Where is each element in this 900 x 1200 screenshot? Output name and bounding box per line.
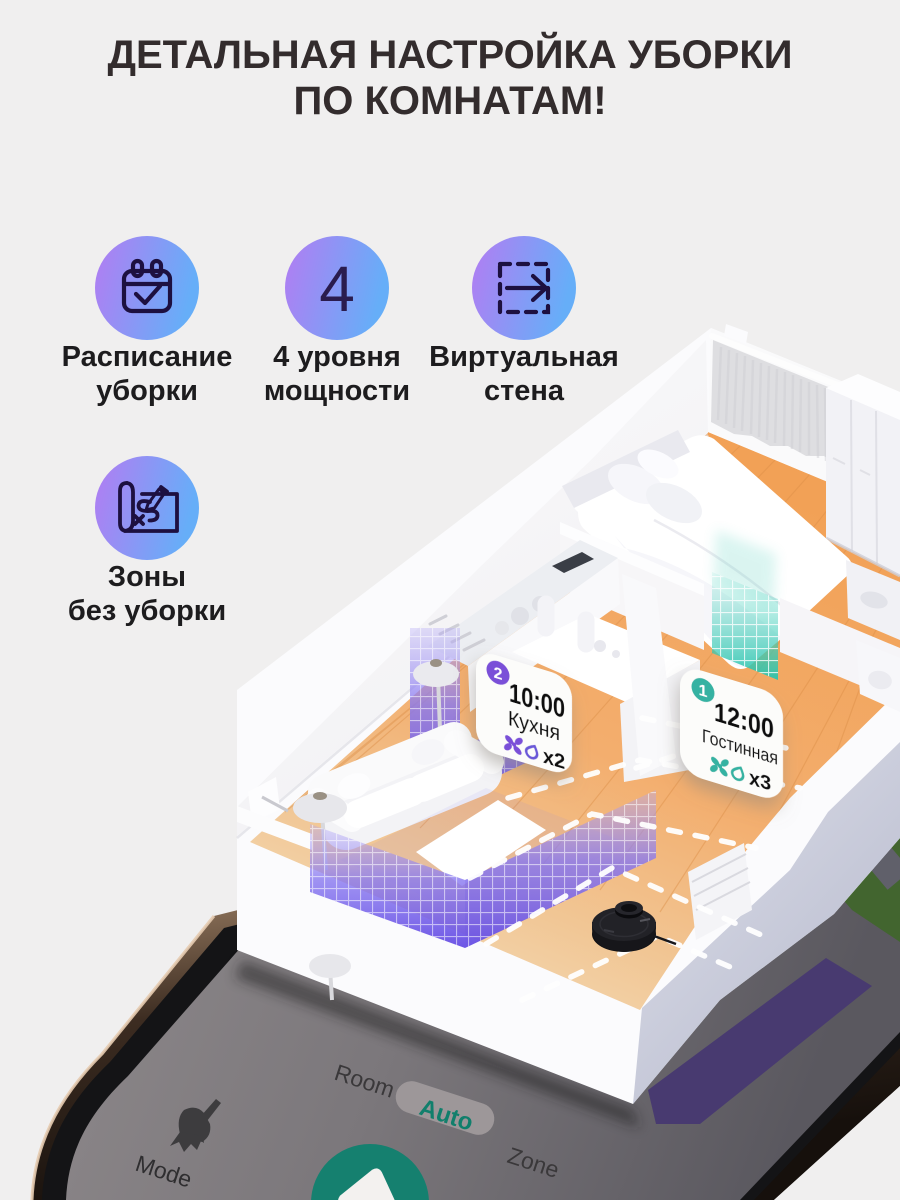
svg-text:ПО КОМНАТАМ!: ПО КОМНАТАМ! [293,79,606,123]
svg-text:без уборки: без уборки [68,595,226,627]
svg-text:мощности: мощности [264,375,410,407]
svg-text:1: 1 [699,681,708,701]
svg-text:4 уровня: 4 уровня [273,341,401,373]
svg-text:4: 4 [319,253,355,325]
svg-text:Расписание: Расписание [62,341,233,373]
svg-text:стена: стена [484,375,565,407]
svg-text:уборки: уборки [96,375,198,407]
svg-text:2: 2 [494,664,503,684]
svg-text:Виртуальная: Виртуальная [429,341,619,373]
svg-text:Зоны: Зоны [108,561,186,593]
svg-text:ДЕТАЛЬНАЯ НАСТРОЙКА УБОРКИ: ДЕТАЛЬНАЯ НАСТРОЙКА УБОРКИ [107,31,792,77]
